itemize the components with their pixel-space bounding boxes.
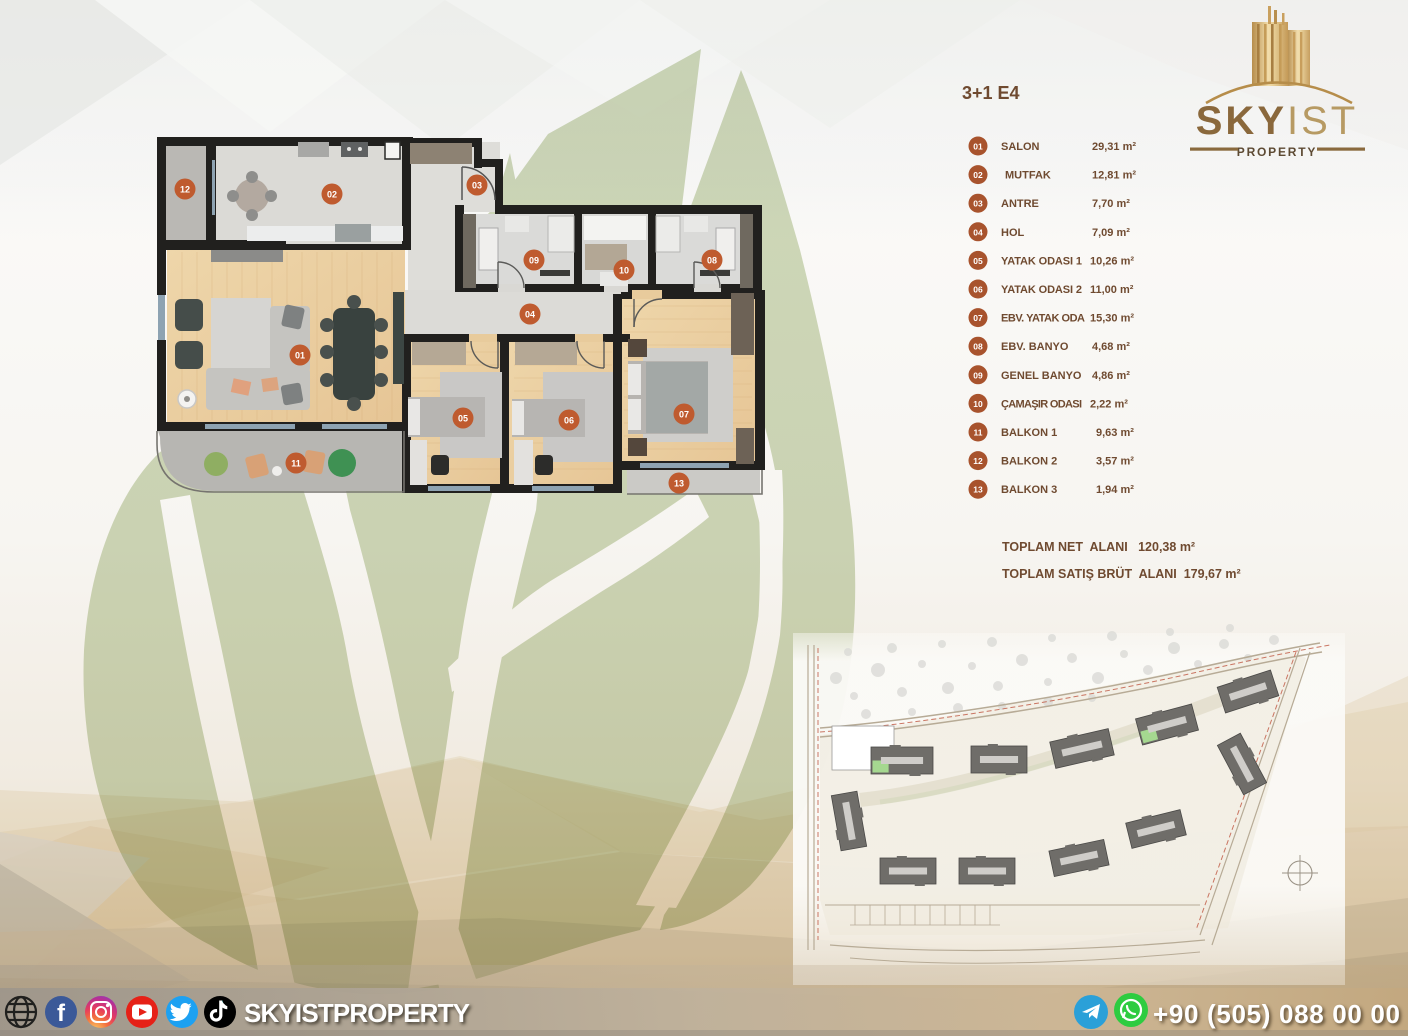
svg-text:05: 05 — [973, 256, 983, 266]
svg-text:01: 01 — [973, 142, 983, 152]
svg-text:11,00 m²: 11,00 m² — [1090, 284, 1134, 296]
svg-text:11: 11 — [974, 428, 983, 438]
svg-text:08: 08 — [973, 342, 983, 352]
svg-text:9,63 m²: 9,63 m² — [1096, 427, 1134, 439]
svg-text:29,31 m²: 29,31 m² — [1092, 141, 1136, 153]
svg-text:EBV. BANYO: EBV. BANYO — [1001, 341, 1069, 353]
svg-text:02: 02 — [327, 190, 337, 200]
svg-text:BALKON 2: BALKON 2 — [1001, 456, 1057, 468]
svg-text:ANTRE: ANTRE — [1001, 198, 1039, 210]
svg-text:YATAK ODASI 2: YATAK ODASI 2 — [1001, 284, 1082, 296]
svg-text:13: 13 — [674, 479, 684, 489]
svg-text:MUTFAK: MUTFAK — [1005, 170, 1051, 182]
svg-text:3,57 m²: 3,57 m² — [1096, 456, 1134, 468]
svg-text:4,68 m²: 4,68 m² — [1092, 341, 1130, 353]
svg-text:04: 04 — [525, 310, 535, 320]
svg-text:06: 06 — [564, 416, 574, 426]
svg-text:BALKON 3: BALKON 3 — [1001, 484, 1057, 496]
svg-text:10,26 m²: 10,26 m² — [1090, 255, 1134, 267]
svg-text:12: 12 — [180, 185, 190, 195]
svg-text:11: 11 — [291, 459, 301, 469]
svg-text:SALON: SALON — [1001, 141, 1040, 153]
svg-text:4,86 m²: 4,86 m² — [1092, 370, 1130, 382]
svg-text:09: 09 — [529, 256, 539, 266]
svg-text:07: 07 — [679, 410, 689, 420]
svg-text:12: 12 — [973, 456, 983, 466]
svg-text:PROPERTY: PROPERTY — [1237, 145, 1317, 159]
svg-text:10: 10 — [973, 399, 983, 409]
svg-text:2,22 m²: 2,22 m² — [1090, 398, 1128, 410]
svg-text:1,94 m²: 1,94 m² — [1096, 484, 1134, 496]
svg-text:03: 03 — [472, 181, 482, 191]
svg-text:15,30 m²: 15,30 m² — [1090, 313, 1134, 325]
svg-text:03: 03 — [973, 199, 983, 209]
svg-text:3+1 E4: 3+1 E4 — [962, 83, 1020, 103]
svg-text:YATAK ODASI 1: YATAK ODASI 1 — [1001, 255, 1082, 267]
svg-text:EBV. YATAK ODA: EBV. YATAK ODA — [1001, 313, 1085, 325]
svg-text:01: 01 — [295, 351, 305, 361]
svg-text:06: 06 — [973, 285, 983, 295]
svg-text:TOPLAM NET ALANI 120,38 m²: TOPLAM NET ALANI 120,38 m² — [1002, 540, 1195, 554]
svg-text:12,81 m²: 12,81 m² — [1092, 170, 1136, 182]
svg-text:05: 05 — [458, 414, 468, 424]
svg-text:+90 (505) 088 00 00: +90 (505) 088 00 00 — [1153, 999, 1400, 1029]
svg-text:07: 07 — [973, 313, 983, 323]
svg-text:09: 09 — [973, 370, 983, 380]
svg-text:TOPLAM SATIŞ BRÜT ALANI 179,: TOPLAM SATIŞ BRÜT ALANI 179,67 m² — [1002, 566, 1241, 581]
svg-text:02: 02 — [973, 170, 983, 180]
svg-text:BALKON 1: BALKON 1 — [1001, 427, 1057, 439]
svg-text:SKYISTPROPERTY: SKYISTPROPERTY — [244, 998, 470, 1028]
svg-text:7,70 m²: 7,70 m² — [1092, 198, 1130, 210]
svg-text:08: 08 — [707, 256, 717, 266]
svg-text:13: 13 — [973, 485, 983, 495]
svg-text:ÇAMAŞIR ODASI: ÇAMAŞIR ODASI — [1001, 398, 1082, 410]
svg-text:7,09 m²: 7,09 m² — [1092, 227, 1130, 239]
svg-text:GENEL BANYO: GENEL BANYO — [1001, 370, 1082, 382]
svg-text:10: 10 — [619, 266, 629, 276]
svg-text:SKYIST: SKYIST — [1196, 99, 1358, 143]
svg-text:04: 04 — [973, 227, 983, 237]
svg-text:f: f — [57, 1000, 66, 1027]
svg-text:HOL: HOL — [1001, 227, 1025, 239]
